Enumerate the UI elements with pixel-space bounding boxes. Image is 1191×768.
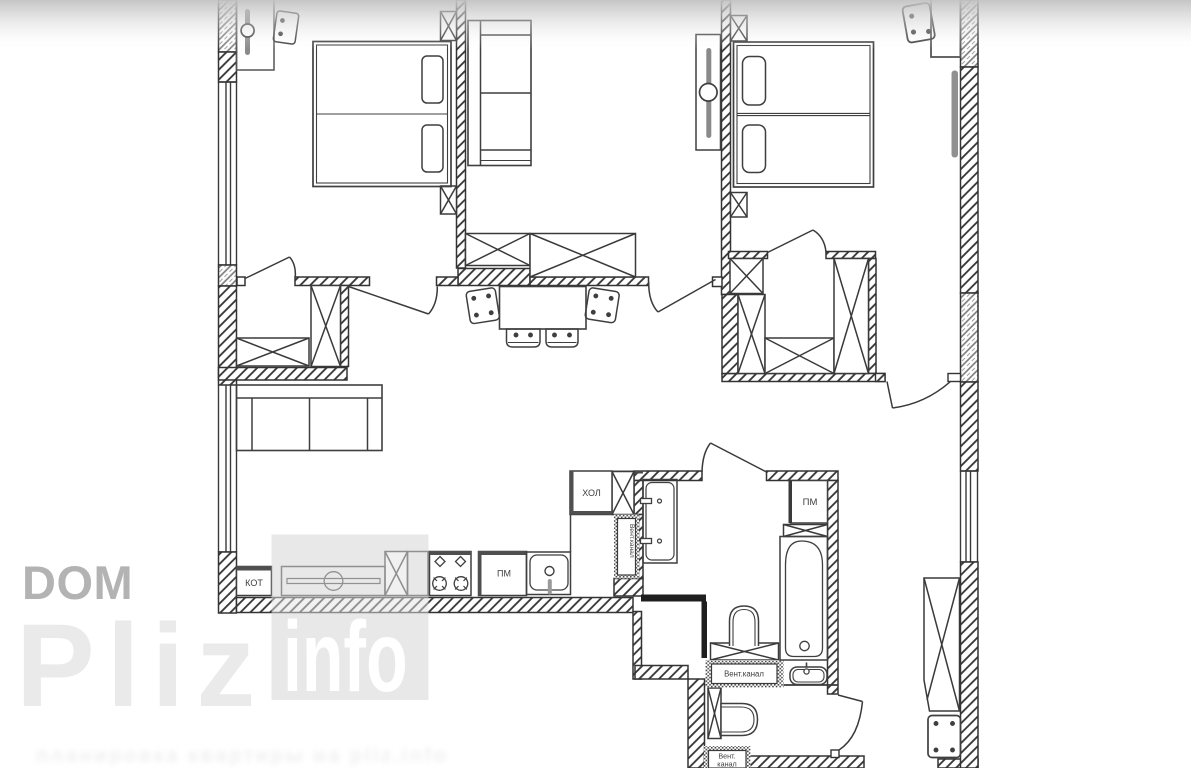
svg-text:ХОЛ: ХОЛ (582, 488, 601, 498)
svg-text:планировка квартиры на pliz: планировка квартиры на pliz.info (36, 745, 446, 767)
svg-text:Pliz: Pliz (16, 600, 267, 732)
svg-text:КОТ: КОТ (245, 578, 263, 588)
svg-text:info: info (283, 602, 408, 713)
svg-text:Вент.канал: Вент.канал (724, 670, 764, 679)
svg-text:ПМ: ПМ (803, 497, 818, 508)
svg-text:ПМ: ПМ (497, 569, 511, 579)
svg-text:канал: канал (717, 760, 736, 768)
svg-text:Вент.канал: Вент.канал (628, 524, 635, 558)
